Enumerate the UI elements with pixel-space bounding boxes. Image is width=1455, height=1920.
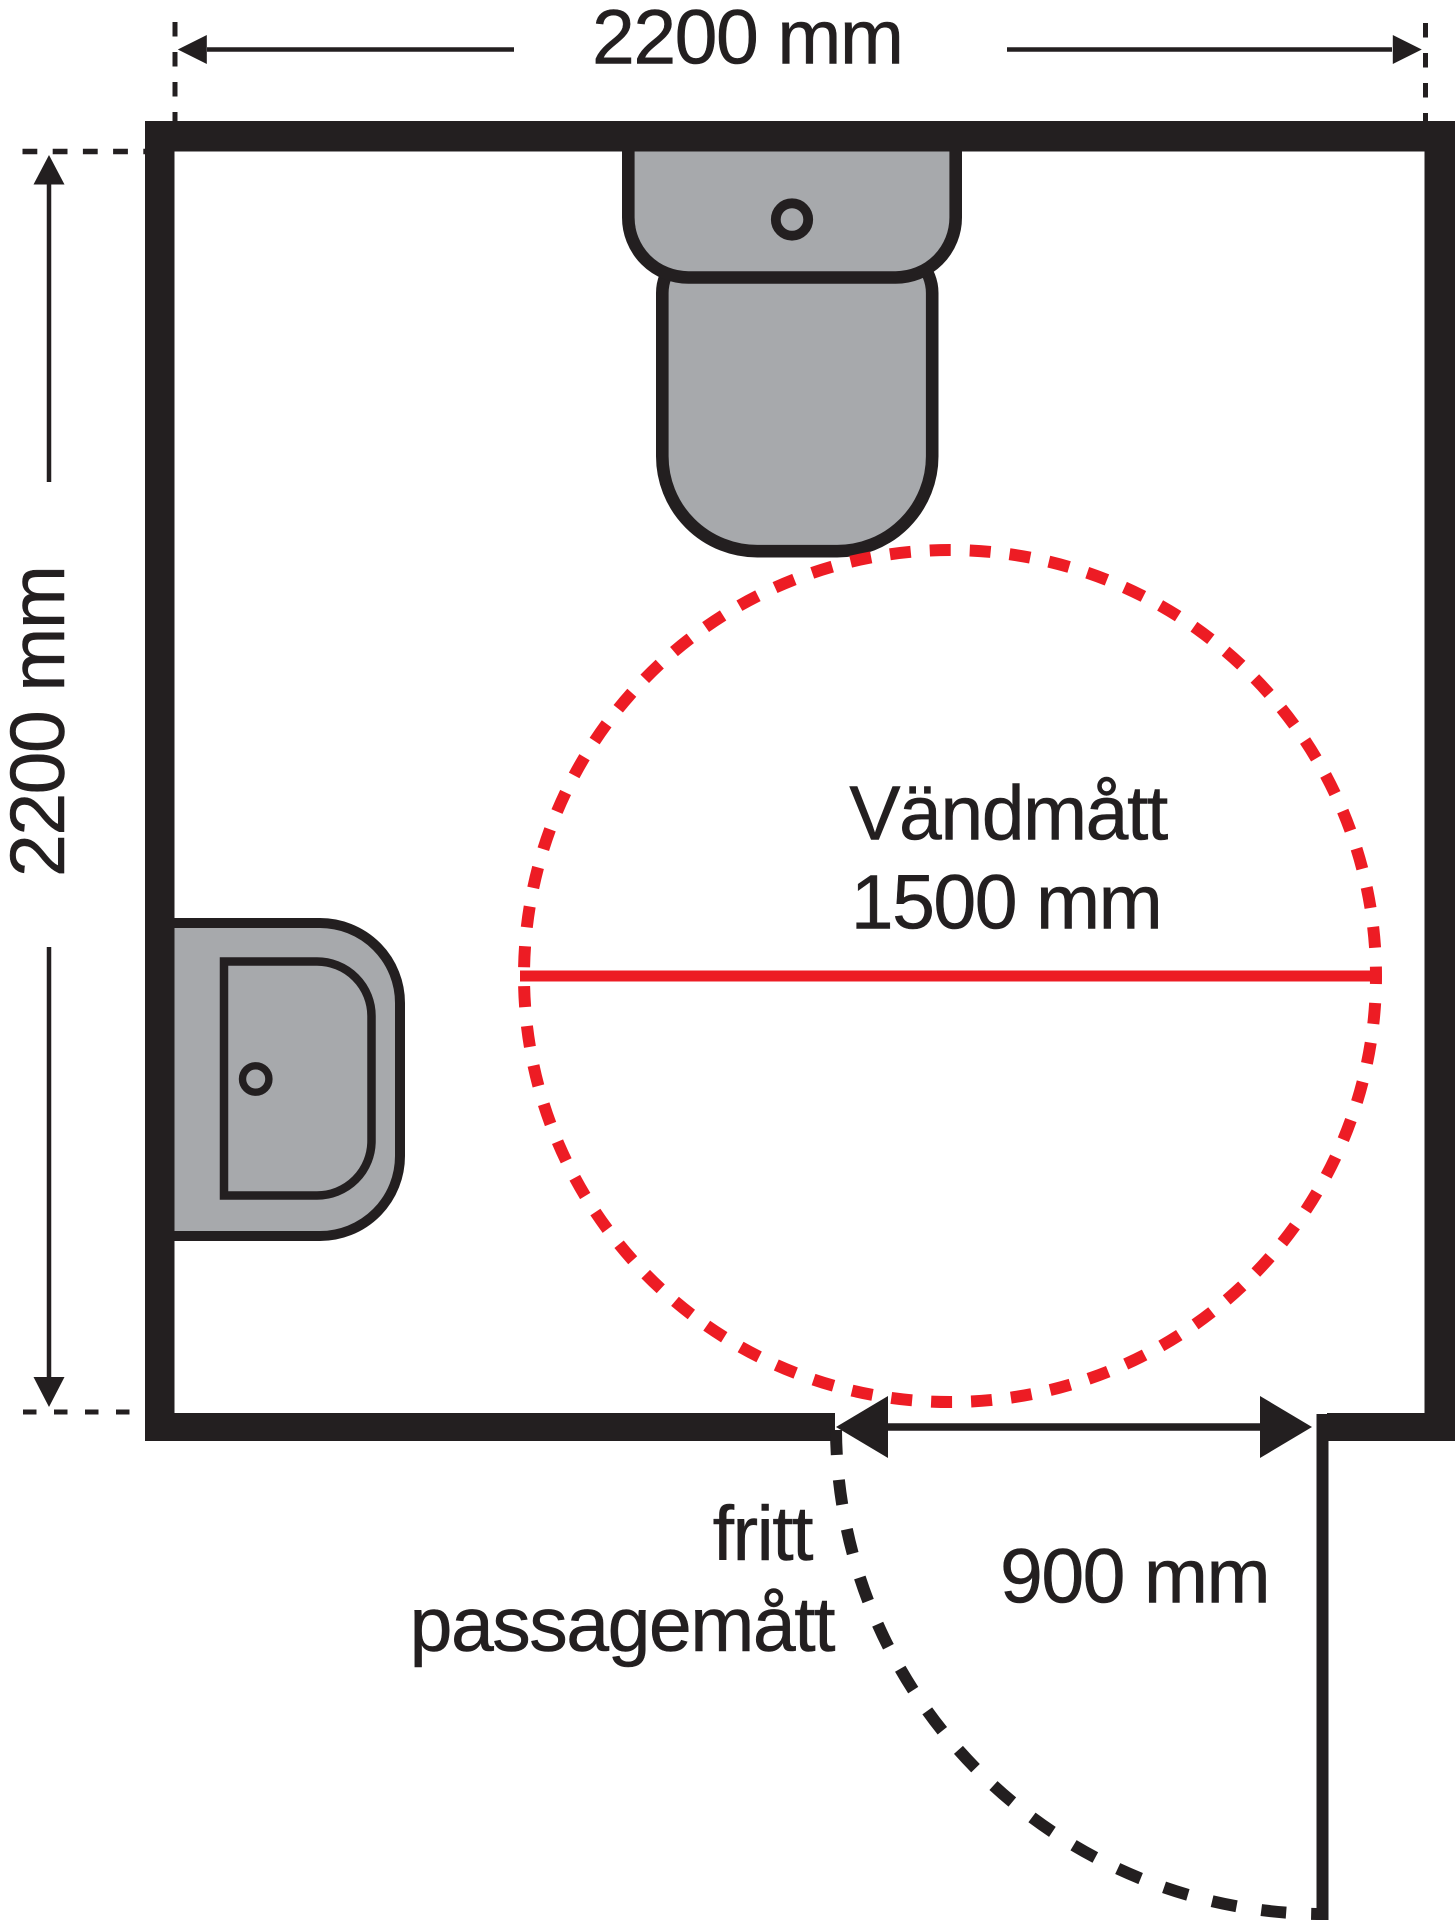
svg-text:Vändmått: Vändmått bbox=[849, 771, 1168, 857]
svg-text:2200 mm: 2200 mm bbox=[0, 567, 81, 877]
svg-text:passagemått: passagemått bbox=[410, 1582, 835, 1668]
svg-text:900 mm: 900 mm bbox=[1000, 1534, 1269, 1620]
svg-text:1500 mm: 1500 mm bbox=[851, 859, 1161, 945]
svg-text:2200 mm: 2200 mm bbox=[592, 0, 902, 81]
svg-text:fritt: fritt bbox=[713, 1491, 814, 1577]
